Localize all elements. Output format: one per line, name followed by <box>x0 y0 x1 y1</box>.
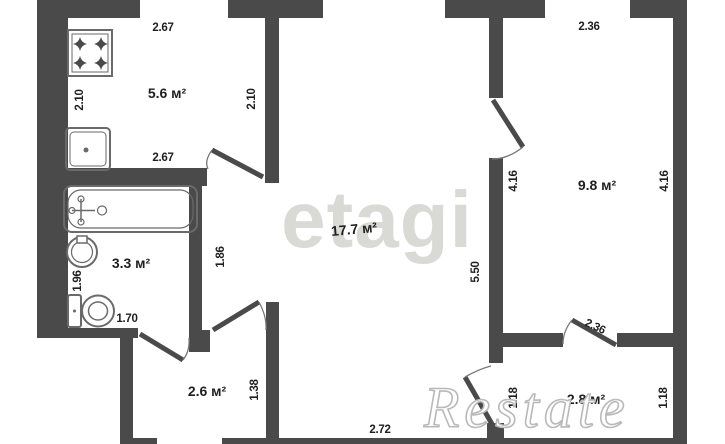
dim-bedroom-left: 4.16 <box>508 170 520 191</box>
dim-balcony-right: 1.18 <box>658 387 670 408</box>
door-hallway <box>213 302 266 330</box>
room-label-bedroom: 9.8 м² <box>578 177 616 193</box>
stove-icon <box>68 30 112 76</box>
room-label-kitchen: 5.6 м² <box>148 85 186 101</box>
dim-bath-bottom: 1.70 <box>116 313 137 325</box>
toilet-icon <box>68 295 114 327</box>
dim-kitchen-bottom: 2.67 <box>152 152 173 164</box>
dim-living-bottom: 2.72 <box>369 424 390 436</box>
door-bedroom <box>492 100 523 159</box>
bathtub-icon <box>64 186 197 232</box>
dim-living-right: 5.50 <box>470 261 482 282</box>
dim-bath-left: 1.96 <box>72 270 84 291</box>
dim-passage-left: 1.86 <box>215 246 227 267</box>
watermark-restate: Restate <box>424 374 630 441</box>
dim-bedroom-top: 2.36 <box>578 21 599 33</box>
room-label-hallway: 2.6 м² <box>188 383 226 399</box>
dim-kitchen-right: 2.10 <box>246 88 258 109</box>
kitchen-sink-icon <box>66 128 110 170</box>
dim-kitchen-top: 2.67 <box>152 22 173 34</box>
room-label-bathroom: 3.3 м² <box>112 255 150 271</box>
dim-bedroom-right: 4.16 <box>659 170 671 191</box>
door-bathroom <box>140 334 189 360</box>
floor-plan: etagi <box>0 0 725 444</box>
washbasin-icon <box>67 236 97 267</box>
dim-hall-right: 1.38 <box>249 379 261 400</box>
dim-kitchen-left: 2.10 <box>74 89 86 110</box>
door-kitchen <box>207 150 263 177</box>
